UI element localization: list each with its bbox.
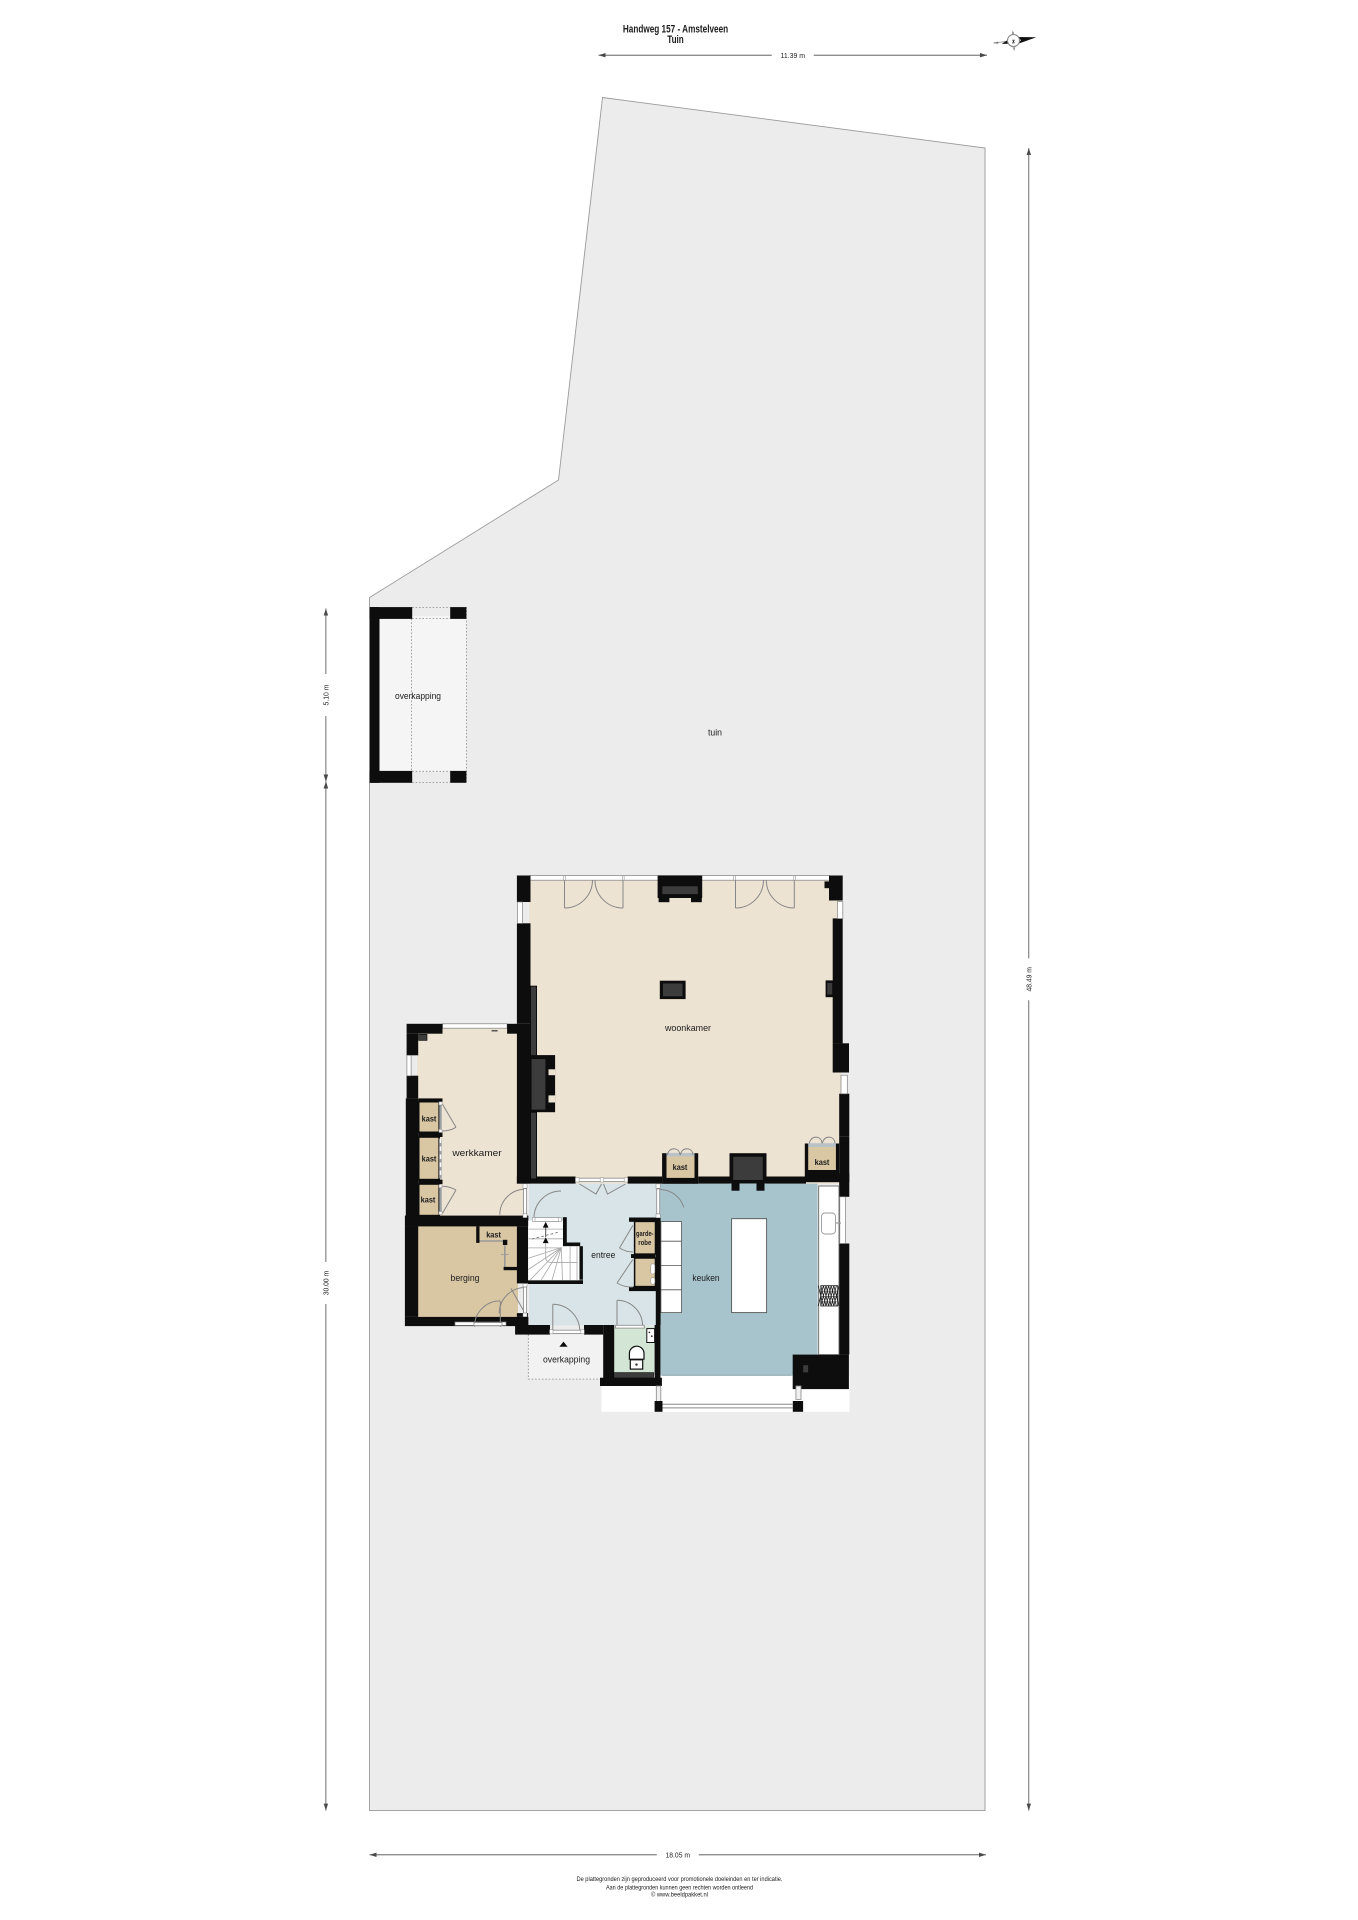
svg-text:kast: kast [422,1114,437,1124]
svg-text:kast: kast [421,1195,436,1205]
svg-text:De plattegronden zijn geproduc: De plattegronden zijn geproduceerd voor … [577,1876,783,1883]
svg-text:robe: robe [638,1238,651,1247]
svg-text:werkkamer: werkkamer [451,1148,501,1158]
svg-text:48.49 m: 48.49 m [1024,967,1033,992]
svg-text:kast: kast [815,1157,830,1167]
svg-text:overkapping: overkapping [395,691,441,702]
svg-text:garde-: garde- [636,1229,654,1238]
svg-text:5.10 m: 5.10 m [321,685,330,706]
svg-text:berging: berging [451,1273,480,1283]
svg-text:entree: entree [591,1250,615,1260]
svg-text:kast: kast [673,1162,688,1172]
svg-text:kast: kast [486,1229,501,1239]
svg-text:11.39 m: 11.39 m [781,51,806,60]
svg-text:tuin: tuin [708,728,722,739]
svg-text:kast: kast [422,1154,437,1164]
svg-text:overkapping: overkapping [543,1354,590,1365]
svg-text:18.05 m: 18.05 m [666,1850,691,1859]
svg-text:woonkamer: woonkamer [664,1023,711,1033]
svg-text:keuken: keuken [692,1273,719,1283]
svg-text:30.00 m: 30.00 m [321,1271,330,1296]
svg-text:Tuin: Tuin [667,34,684,46]
svg-text:© www.beeldpakket.nl: © www.beeldpakket.nl [651,1890,708,1898]
